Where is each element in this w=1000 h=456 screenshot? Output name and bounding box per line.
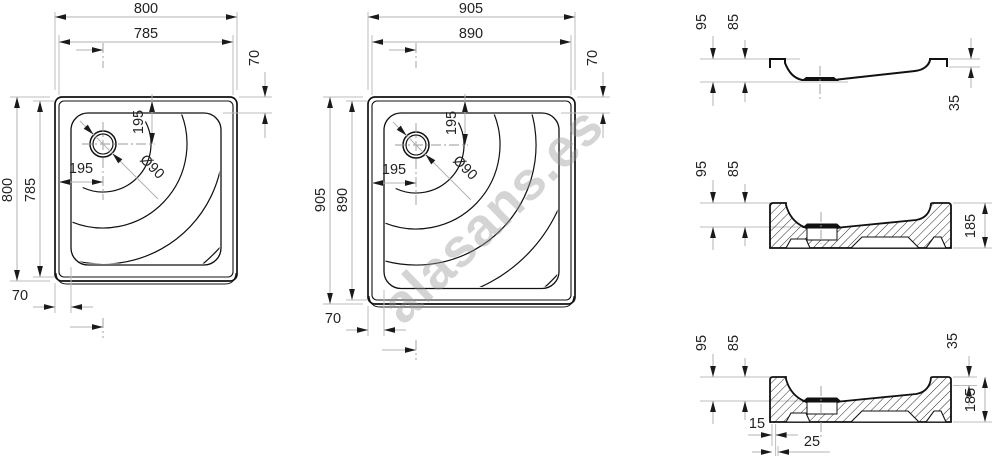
dim-s3-offset-b: 25 — [804, 434, 820, 450]
dim-plan800-height-outer: 800 — [0, 178, 16, 202]
dim-s2-height-outer: 95 — [694, 161, 710, 177]
watermark-text: alasans.es — [370, 95, 615, 335]
dim-s1-height-outer: 95 — [694, 14, 710, 30]
technical-drawing-canvas: 800 785 70 800 785 195 195 Ø90 70 — [0, 0, 1000, 456]
dim-plan800-height-inner: 785 — [23, 178, 39, 202]
dim-plan905-offset-right: 70 — [585, 50, 601, 66]
drain-pocket — [807, 402, 837, 414]
shell-profile — [770, 59, 947, 80]
dim-plan905-drain-left: 195 — [382, 162, 406, 178]
drain-plate — [802, 398, 842, 403]
dim-plan905-width-outer: 905 — [459, 1, 483, 17]
foot-recess — [851, 411, 919, 422]
dim-s1-height-inner: 85 — [726, 14, 742, 30]
dim-plan800-width-inner: 785 — [134, 26, 158, 42]
dim-plan905-height-outer: 905 — [313, 188, 329, 212]
foot-recess — [851, 237, 919, 248]
dim-plan800-offset-bottom: 70 — [12, 288, 28, 304]
dim-plan800-drain-diameter: Ø90 — [136, 152, 167, 183]
plan-view-800: 800 785 70 800 785 195 195 Ø90 70 — [0, 1, 367, 408]
dim-plan905-width-inner: 890 — [459, 26, 483, 42]
dim-plan800-offset-right: 70 — [247, 50, 263, 66]
dim-s3-height-outer: 95 — [694, 335, 710, 351]
dim-plan905-height-inner: 890 — [335, 188, 351, 212]
drain-pocket — [807, 228, 837, 240]
dim-s3-offset-a: 15 — [749, 416, 765, 432]
dim-s3-total-height: 185 — [963, 388, 979, 412]
dim-s1-lip: 35 — [947, 95, 963, 111]
tray-skirt-edge — [56, 273, 236, 284]
dim-s2-height-inner: 85 — [726, 161, 742, 177]
drain-plate — [802, 224, 842, 229]
shower-tray-drawing: 800 785 70 800 785 195 195 Ø90 70 — [0, 0, 1000, 456]
dim-plan800-drain-left: 195 — [69, 161, 93, 177]
cross-section-with-base: 95 85 185 — [694, 161, 992, 250]
dim-plan800-drain-top: 195 — [131, 110, 147, 134]
dim-plan800-width-outer: 800 — [134, 1, 158, 17]
dim-s2-total-height: 185 — [963, 214, 979, 238]
dim-plan905-drain-top: 195 — [444, 111, 460, 135]
dim-s3-lip: 35 — [945, 333, 961, 349]
cross-section-with-base-detail: 95 85 35 185 15 25 — [694, 333, 992, 456]
dim-plan905-offset-bottom: 70 — [325, 311, 341, 327]
dim-s3-height-inner: 85 — [726, 335, 742, 351]
cross-section-shell: 95 85 35 — [694, 14, 980, 111]
dim-plan905-drain-diameter: Ø90 — [449, 153, 480, 184]
